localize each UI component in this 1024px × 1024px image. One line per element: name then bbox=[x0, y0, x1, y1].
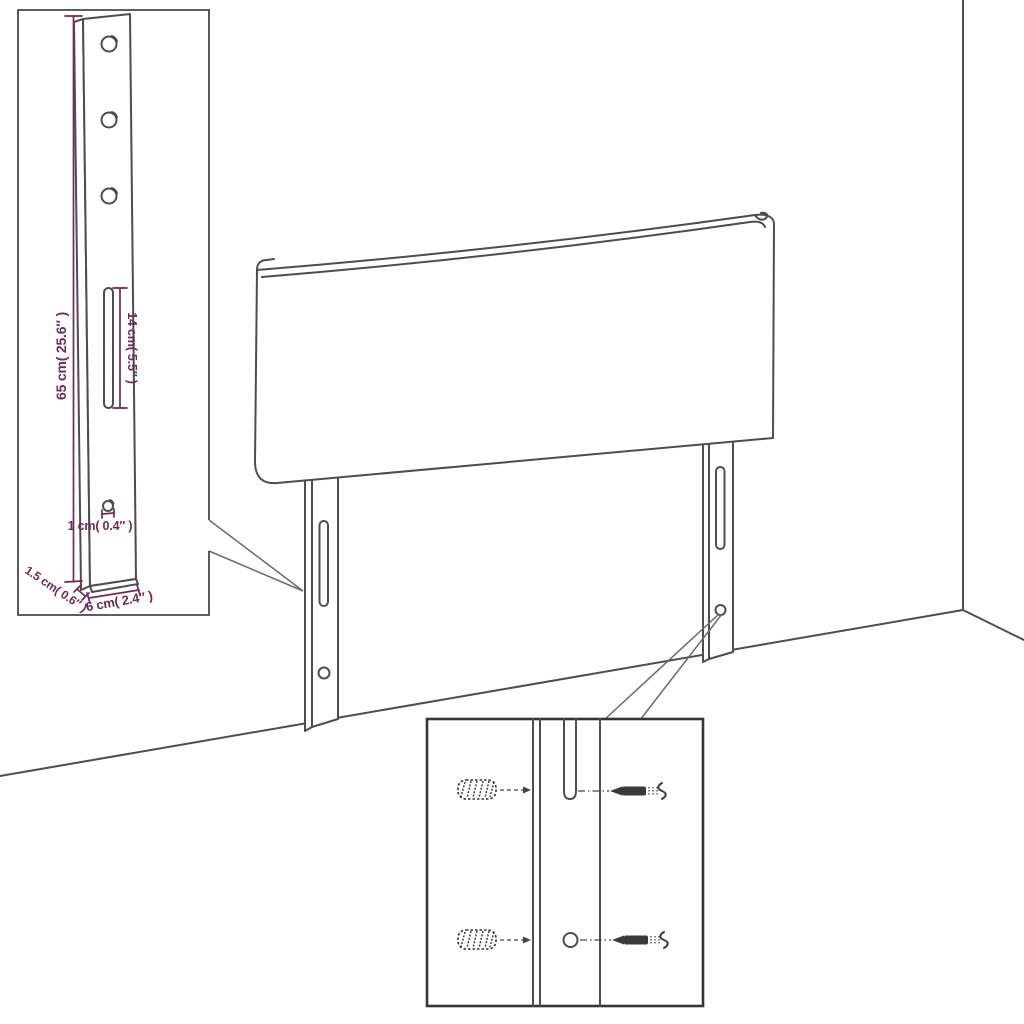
headboard-left-leg bbox=[305, 464, 338, 731]
dimension-line bbox=[102, 513, 114, 514]
headboard-assembly-diagram: 65 cm( 25.6″ ) 14 cm( 5.5″ ) 1 cm( 0.4″ … bbox=[0, 0, 1024, 1024]
headboard bbox=[255, 213, 774, 483]
callout-line bbox=[640, 614, 722, 720]
left-leg-side-face bbox=[305, 468, 312, 731]
screw-body bbox=[624, 936, 648, 945]
headboard-right-leg bbox=[703, 424, 733, 662]
leg-height-label: 65 cm( 25.6″ ) bbox=[53, 312, 69, 400]
inset-leg bbox=[74, 14, 138, 592]
slot-length-label: 14 cm( 5.5″ ) bbox=[125, 312, 139, 384]
leg-dimension-inset: 65 cm( 25.6″ ) 14 cm( 5.5″ ) 1 cm( 0.4″ … bbox=[18, 10, 209, 615]
dimension-tick bbox=[65, 581, 82, 582]
left-leg-front-face bbox=[312, 464, 338, 727]
right-leg-front-face bbox=[709, 424, 733, 659]
screw-detail-inset bbox=[427, 719, 703, 1006]
hole-diameter-label: 1 cm( 0.4″ ) bbox=[68, 519, 133, 533]
headboard-front-face bbox=[255, 215, 774, 484]
product-diagram: 65 cm( 25.6″ ) 14 cm( 5.5″ ) 1 cm( 0.4″ … bbox=[0, 0, 1024, 1024]
screw-body bbox=[622, 787, 646, 796]
floor-line-right bbox=[963, 610, 1024, 640]
callout-line bbox=[209, 551, 303, 591]
inset-callout-lines-left bbox=[209, 520, 303, 591]
callout-line bbox=[604, 614, 719, 720]
callout-line bbox=[209, 520, 303, 591]
